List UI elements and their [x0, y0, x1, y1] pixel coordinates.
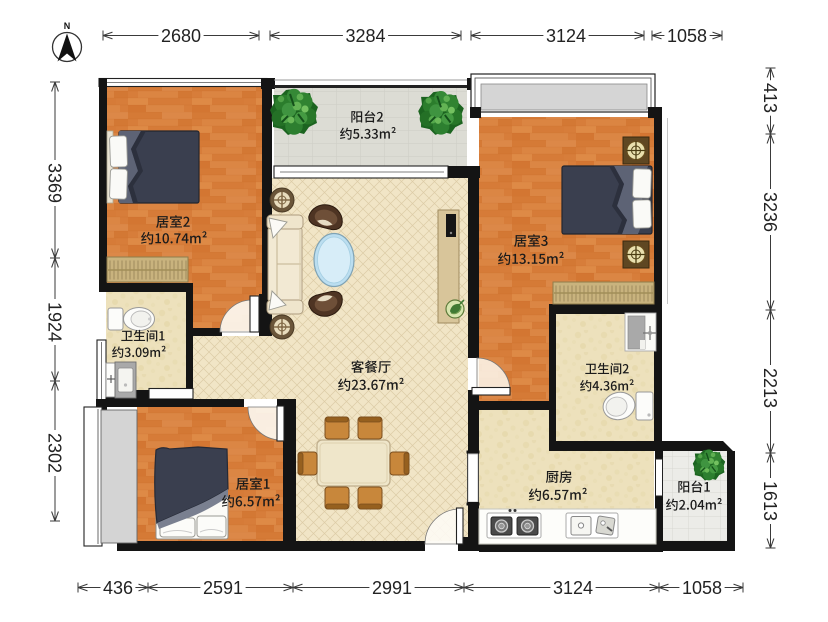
svg-text:2991: 2991 — [372, 578, 412, 598]
svg-text:3124: 3124 — [553, 578, 593, 598]
svg-text:2591: 2591 — [203, 578, 243, 598]
svg-text:N: N — [64, 21, 71, 31]
svg-text:1058: 1058 — [682, 578, 722, 598]
svg-text:1613: 1613 — [760, 481, 780, 521]
svg-text:1924: 1924 — [45, 302, 65, 342]
svg-text:3124: 3124 — [546, 26, 586, 46]
svg-text:1058: 1058 — [667, 26, 707, 46]
svg-text:2213: 2213 — [760, 368, 780, 408]
svg-text:3369: 3369 — [45, 163, 65, 203]
svg-text:436: 436 — [103, 578, 133, 598]
svg-text:2302: 2302 — [45, 433, 65, 473]
svg-text:3236: 3236 — [760, 192, 780, 232]
svg-text:3284: 3284 — [345, 26, 385, 46]
svg-text:413: 413 — [760, 83, 780, 113]
svg-text:2680: 2680 — [161, 26, 201, 46]
